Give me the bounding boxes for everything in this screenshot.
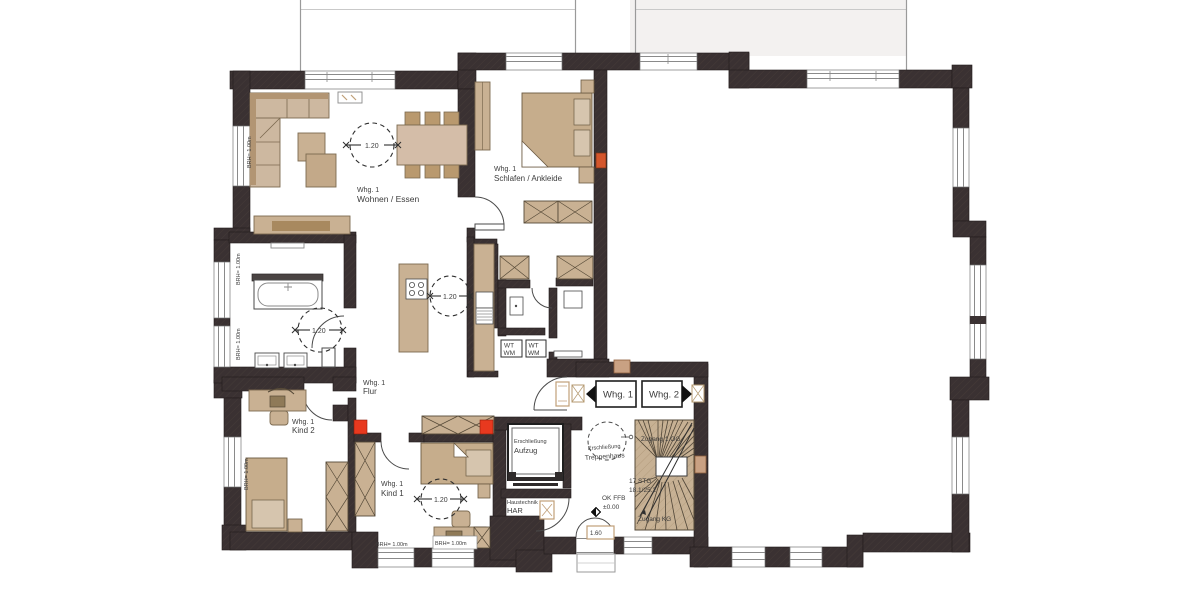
- svg-text:HAR: HAR: [507, 506, 523, 515]
- svg-text:±0.00: ±0.00: [603, 504, 620, 511]
- svg-text:BRH= 1.00m: BRH= 1.00m: [236, 328, 242, 360]
- svg-text:BRH= 1.00m: BRH= 1.00m: [435, 541, 467, 547]
- svg-text:Whg. 1: Whg. 1: [357, 187, 379, 194]
- svg-text:Zugang 1.OG: Zugang 1.OG: [641, 436, 680, 443]
- svg-text:Whg. 1: Whg. 1: [381, 481, 403, 488]
- svg-text:Whg. 1: Whg. 1: [292, 419, 314, 426]
- svg-text:WM: WM: [528, 350, 540, 357]
- svg-text:Whg. 1: Whg. 1: [603, 390, 633, 401]
- svg-text:Whg. 1: Whg. 1: [363, 380, 385, 387]
- svg-text:Whg. 2: Whg. 2: [649, 390, 679, 401]
- svg-text:Zugang KG: Zugang KG: [638, 516, 671, 523]
- svg-text:Kind 2: Kind 2: [292, 426, 315, 435]
- svg-text:OK FFB: OK FFB: [602, 495, 625, 502]
- svg-text:17 STG: 17 STG: [629, 478, 651, 485]
- svg-text:1.20: 1.20: [365, 143, 379, 150]
- svg-text:Whg. 1: Whg. 1: [494, 166, 516, 173]
- svg-text:Kind 1: Kind 1: [381, 489, 404, 498]
- svg-text:WM: WM: [504, 350, 516, 357]
- svg-text:BRH= 1.00m: BRH= 1.00m: [236, 253, 242, 285]
- svg-text:1.20: 1.20: [443, 294, 457, 301]
- svg-text:Aufzug: Aufzug: [514, 446, 537, 455]
- svg-text:Schlafen / Ankleide: Schlafen / Ankleide: [494, 174, 563, 183]
- svg-text:BRH= 1.00m: BRH= 1.00m: [244, 458, 250, 490]
- svg-text:1.20: 1.20: [312, 328, 326, 335]
- svg-text:WT: WT: [504, 343, 514, 350]
- svg-text:BRH= 1.00m: BRH= 1.00m: [376, 542, 408, 548]
- svg-text:Erschließung: Erschließung: [514, 439, 547, 445]
- svg-text:BRH= 1.00m: BRH= 1.00m: [247, 136, 253, 168]
- svg-text:Wohnen / Essen: Wohnen / Essen: [357, 194, 419, 204]
- svg-text:Flur: Flur: [363, 387, 377, 396]
- svg-text:18.1/25.2: 18.1/25.2: [629, 487, 656, 494]
- svg-text:1.60: 1.60: [590, 531, 602, 537]
- svg-text:1.20: 1.20: [434, 497, 448, 504]
- svg-text:WT: WT: [529, 343, 539, 350]
